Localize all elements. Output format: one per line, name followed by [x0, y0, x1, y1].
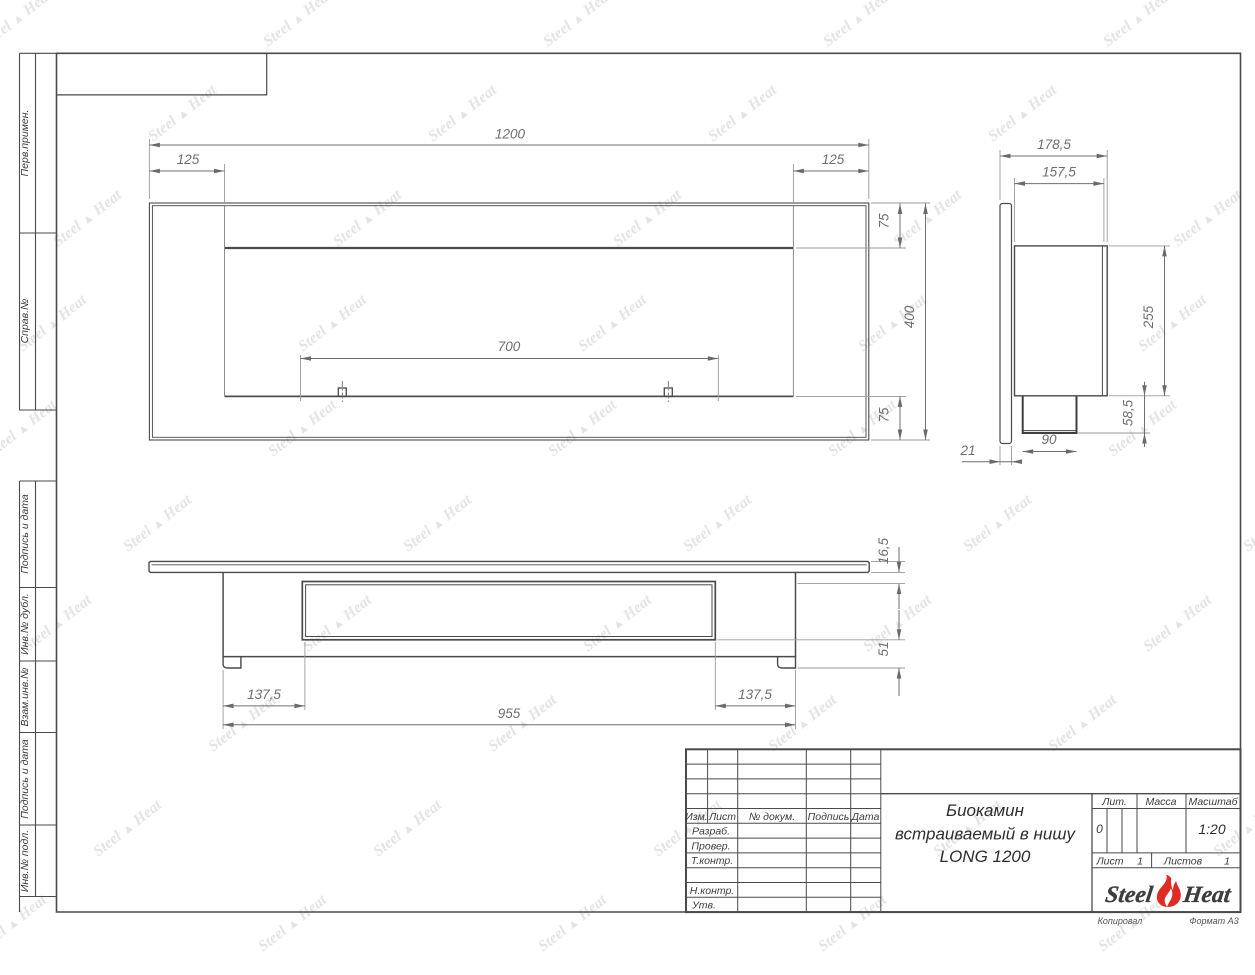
svg-text:Разраб.: Разраб.: [692, 826, 730, 838]
svg-text:700: 700: [498, 339, 521, 354]
svg-text:51: 51: [876, 641, 891, 656]
svg-text:125: 125: [822, 152, 845, 167]
svg-text:1: 1: [1137, 855, 1143, 867]
svg-text:Инв.№ подл.: Инв.№ подл.: [19, 830, 31, 892]
svg-text:Справ.№: Справ.№: [19, 299, 31, 344]
svg-text:Heat: Heat: [1181, 882, 1234, 908]
svg-text:Н.контр.: Н.контр.: [690, 885, 734, 897]
svg-text:Дата: Дата: [851, 811, 880, 823]
svg-text:178,5: 178,5: [1037, 137, 1071, 152]
svg-text:Лит.: Лит.: [1101, 796, 1127, 808]
svg-text:Масштаб: Масштаб: [1188, 796, 1238, 808]
svg-text:157,5: 157,5: [1042, 165, 1076, 180]
svg-text:Подпись и дата: Подпись и дата: [19, 494, 31, 574]
svg-text:Взам.инв.№: Взам.инв.№: [19, 667, 31, 726]
svg-text:90: 90: [1041, 432, 1057, 447]
svg-text:400: 400: [902, 305, 917, 328]
svg-text:Масса: Масса: [1145, 796, 1176, 808]
svg-text:Т.контр.: Т.контр.: [691, 855, 733, 867]
svg-text:137,5: 137,5: [247, 687, 281, 702]
svg-text:75: 75: [877, 407, 892, 423]
svg-text:Лист: Лист: [1095, 855, 1123, 867]
svg-text:21: 21: [959, 443, 975, 458]
svg-text:Перв.примен.: Перв.примен.: [19, 110, 31, 177]
svg-text:75: 75: [877, 213, 892, 229]
svg-text:0: 0: [1096, 822, 1103, 836]
svg-text:№ докум.: № докум.: [749, 811, 795, 823]
svg-text:Инв.№ дубл.: Инв.№ дубл.: [19, 593, 31, 655]
svg-text:Провер.: Провер.: [691, 840, 730, 852]
svg-text:58,5: 58,5: [1121, 399, 1136, 426]
svg-text:1: 1: [1224, 855, 1230, 867]
svg-text:255: 255: [1141, 305, 1156, 329]
svg-text:Листов: Листов: [1163, 855, 1203, 867]
svg-text:1:20: 1:20: [1198, 821, 1225, 837]
svg-text:встраиваемый в нишу: встраиваемый в нишу: [895, 825, 1076, 844]
svg-text:1200: 1200: [495, 127, 526, 142]
svg-text:Биокамин: Биокамин: [946, 801, 1025, 820]
svg-text:Копировал: Копировал: [1098, 916, 1143, 926]
svg-text:125: 125: [177, 152, 200, 167]
svg-text:LONG 1200: LONG 1200: [940, 847, 1031, 866]
svg-text:Формат А3: Формат А3: [1189, 916, 1238, 926]
svg-text:Подпись: Подпись: [808, 811, 850, 823]
svg-text:16,5: 16,5: [876, 537, 891, 564]
svg-text:Утв.: Утв.: [691, 900, 716, 912]
svg-text:137,5: 137,5: [738, 687, 772, 702]
svg-text:Изм.: Изм.: [685, 811, 707, 823]
svg-text:955: 955: [498, 706, 521, 721]
svg-text:Steel: Steel: [1104, 882, 1155, 908]
svg-text:Лист: Лист: [708, 811, 736, 823]
svg-text:Подпись и дата: Подпись и дата: [19, 739, 31, 819]
